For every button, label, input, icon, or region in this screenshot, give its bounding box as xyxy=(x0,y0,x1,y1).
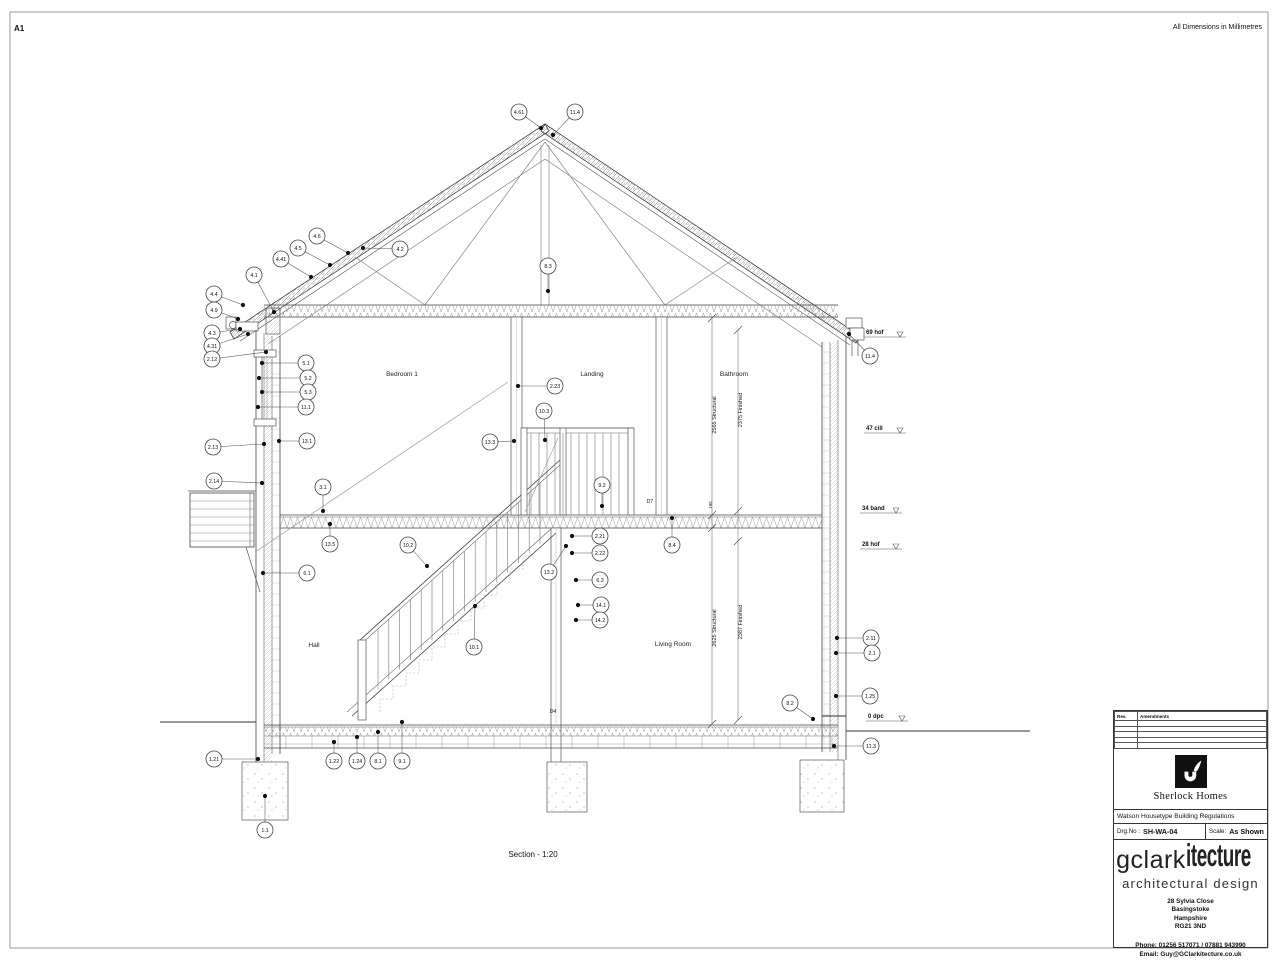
dimension-note: All Dimensions in Millimetres xyxy=(1173,24,1263,31)
room-label-bedroom-1: Bedroom 1 xyxy=(386,371,418,378)
svg-text:28 hof: 28 hof xyxy=(862,542,881,548)
svg-text:4.61: 4.61 xyxy=(514,110,524,116)
svg-text:8.3: 8.3 xyxy=(544,264,551,270)
level-marker-34-band: 34 band xyxy=(860,506,902,513)
svg-text:2.21: 2.21 xyxy=(595,534,605,540)
level-marker-28-hof: 28 hof xyxy=(860,542,902,549)
callout-4.5: 4.5 xyxy=(290,240,332,267)
svg-text:5.2: 5.2 xyxy=(304,376,311,382)
company-name: Sherlock Homes xyxy=(1114,791,1267,802)
svg-text:11.4: 11.4 xyxy=(570,110,580,116)
svg-text:2.13: 2.13 xyxy=(208,445,218,451)
svg-text:2.14: 2.14 xyxy=(209,479,219,485)
svg-text:11.1: 11.1 xyxy=(301,405,311,411)
company-logo-area: Sherlock Homes xyxy=(1114,749,1267,809)
svg-text:4.4: 4.4 xyxy=(210,292,217,298)
callout-3.1: 3.1 xyxy=(315,479,331,513)
brand-primary-text: gclark xyxy=(1116,846,1186,874)
svg-text:8.4: 8.4 xyxy=(668,543,675,549)
first-floor xyxy=(280,515,822,528)
svg-text:10.3: 10.3 xyxy=(539,409,549,415)
svg-text:4.3: 4.3 xyxy=(208,331,215,337)
address-line: Hampshire xyxy=(1114,915,1267,924)
callout-11.4: 11.4 xyxy=(551,104,583,137)
svg-text:47 cill: 47 cill xyxy=(866,426,883,432)
svg-text:9.2: 9.2 xyxy=(598,483,605,489)
callout-4.61: 4.61 xyxy=(511,104,543,130)
svg-text:2.12: 2.12 xyxy=(207,357,217,363)
svg-text:11.3: 11.3 xyxy=(866,744,876,750)
svg-text:13.1: 13.1 xyxy=(302,439,312,445)
drg-no-value: SH-WA-04 xyxy=(1143,827,1177,836)
email-line: Email: Guy@GClarkitecture.co.uk xyxy=(1114,950,1267,959)
address-block: 28 Sylvia Close Basingstoke Hampshire RG… xyxy=(1114,898,1267,932)
dim-text: 2625 Structural xyxy=(712,609,718,646)
address-line: 28 Sylvia Close xyxy=(1114,898,1267,907)
callout-2.11: 2.11 xyxy=(835,630,879,646)
svg-text:6.1: 6.1 xyxy=(303,571,310,577)
dim-text: 2387 Finished xyxy=(738,605,744,640)
callout-2.13: 2.13 xyxy=(205,439,266,455)
scale-value: As Shown xyxy=(1229,827,1264,836)
level-marker-0-dpc: 0 dpc xyxy=(866,714,908,721)
brand-tagline: architectural design xyxy=(1114,876,1267,891)
svg-text:5.1: 5.1 xyxy=(302,361,309,367)
svg-text:3.1: 3.1 xyxy=(319,485,326,491)
door-ref-D4: D4 xyxy=(550,709,557,715)
callout-1.25: 1.25 xyxy=(834,688,878,704)
callout-9.2: 9.2 xyxy=(594,477,610,508)
drawing-sheet: { "page": { "sheet_size": "A1", "dimensi… xyxy=(0,0,1280,960)
callout-2.1: 2.1 xyxy=(834,645,880,661)
brand-secondary-text: itecture xyxy=(1186,837,1251,873)
brand-logo: gclarkitecture xyxy=(1114,846,1267,875)
door-ref-D7: D7 xyxy=(647,499,654,505)
amendments-table: Rev. Amendments xyxy=(1114,711,1267,749)
drawing-caption: Section - 1:20 xyxy=(508,850,558,859)
callout-2.21: 2.21 xyxy=(570,528,608,544)
callout-2.23: 2.23 xyxy=(516,378,563,394)
dim-text: 2565 Structural xyxy=(712,396,718,433)
svg-text:1.1: 1.1 xyxy=(261,828,268,834)
svg-text:2.23: 2.23 xyxy=(550,384,560,390)
title-block: Rev. Amendments Sherlock Homes Watson Ho… xyxy=(1113,710,1268,948)
dim-text: 2375 Finished xyxy=(738,393,744,428)
left-wall xyxy=(254,330,280,762)
address-line: Basingstoke xyxy=(1114,906,1267,915)
rev-header: Rev. xyxy=(1115,712,1138,721)
level-marker-69-hof: 69 hof xyxy=(864,330,906,337)
callout-8.2: 8.2 xyxy=(782,695,815,721)
svg-text:2.22: 2.22 xyxy=(595,551,605,557)
svg-text:1.25: 1.25 xyxy=(865,694,875,700)
svg-text:4.6: 4.6 xyxy=(313,234,320,240)
callout-8.3: 8.3 xyxy=(540,258,556,293)
svg-text:0 dpc: 0 dpc xyxy=(868,714,884,720)
svg-text:4.1: 4.1 xyxy=(250,273,257,279)
callout-4.41: 4.41 xyxy=(273,251,313,279)
drg-no-label: Drg.No : xyxy=(1117,828,1140,835)
canopy xyxy=(188,491,260,592)
project-title: Watson Housetype Building Regulations xyxy=(1114,809,1267,824)
svg-text:4.9: 4.9 xyxy=(210,308,217,314)
svg-text:2.11: 2.11 xyxy=(866,636,876,642)
phone-line: Phone: 01256 517071 / 07881 943990 xyxy=(1114,941,1267,950)
callout-10.3: 10.3 xyxy=(536,403,552,442)
pipe-logo-icon xyxy=(1175,755,1207,788)
address-line: RG21 3ND xyxy=(1114,923,1267,932)
callout-10.2: 10.2 xyxy=(400,537,429,568)
svg-text:6.3: 6.3 xyxy=(596,578,603,584)
callout-11.3: 11.3 xyxy=(832,738,879,754)
svg-text:13.2: 13.2 xyxy=(544,570,554,576)
svg-text:1.22: 1.22 xyxy=(329,759,339,765)
section-drawing-canvas: A1 All Dimensions in Millimetres xyxy=(0,0,1280,960)
svg-text:4.2: 4.2 xyxy=(396,247,403,253)
amendments-header: Amendments xyxy=(1138,712,1267,721)
callout-14.2: 14.2 xyxy=(574,612,608,628)
level-marker-47-cill: 47 cill xyxy=(864,426,906,433)
room-label-bathroom: Bathroom xyxy=(720,371,748,378)
room-label-living-room: Living Room xyxy=(655,641,691,648)
svg-text:34 band: 34 band xyxy=(862,506,885,512)
room-label-landing: Landing xyxy=(580,371,604,378)
callout-4.6: 4.6 xyxy=(309,228,350,255)
room-label-hall: Hall xyxy=(308,642,320,649)
svg-text:4.31: 4.31 xyxy=(207,344,217,350)
svg-text:11.4: 11.4 xyxy=(865,354,875,360)
svg-text:8.2: 8.2 xyxy=(786,701,793,707)
svg-text:1.21: 1.21 xyxy=(209,757,219,763)
contact-block: Phone: 01256 517071 / 07881 943990 Email… xyxy=(1114,941,1267,959)
scale-label: Scale: xyxy=(1209,828,1226,835)
svg-text:4.5: 4.5 xyxy=(294,246,301,252)
svg-text:5.3: 5.3 xyxy=(304,390,311,396)
svg-text:14.1: 14.1 xyxy=(596,603,606,609)
svg-text:13.3: 13.3 xyxy=(485,440,495,446)
sheet-size-label: A1 xyxy=(14,24,25,33)
dim-text: 195 xyxy=(708,501,713,509)
svg-text:10.1: 10.1 xyxy=(469,645,479,651)
svg-text:9.1: 9.1 xyxy=(398,759,405,765)
svg-text:13.5: 13.5 xyxy=(325,542,335,548)
svg-text:69 hof: 69 hof xyxy=(866,330,885,336)
svg-text:8.1: 8.1 xyxy=(374,759,381,765)
svg-text:1.24: 1.24 xyxy=(352,759,362,765)
callout-13.1: 13.1 xyxy=(277,433,315,449)
callout-4.1: 4.1 xyxy=(246,267,276,314)
callout-14.1: 14.1 xyxy=(576,597,609,613)
landing-balustrade xyxy=(521,428,634,515)
svg-text:14.2: 14.2 xyxy=(595,618,605,624)
ceiling xyxy=(264,305,838,317)
svg-text:10.2: 10.2 xyxy=(403,543,413,549)
callout-6.3: 6.3 xyxy=(574,572,608,588)
callout-2.14: 2.14 xyxy=(206,473,264,489)
svg-text:2.1: 2.1 xyxy=(868,651,875,657)
svg-text:4.41: 4.41 xyxy=(276,257,286,263)
page-border xyxy=(10,12,1268,948)
callout-2.22: 2.22 xyxy=(570,545,608,561)
